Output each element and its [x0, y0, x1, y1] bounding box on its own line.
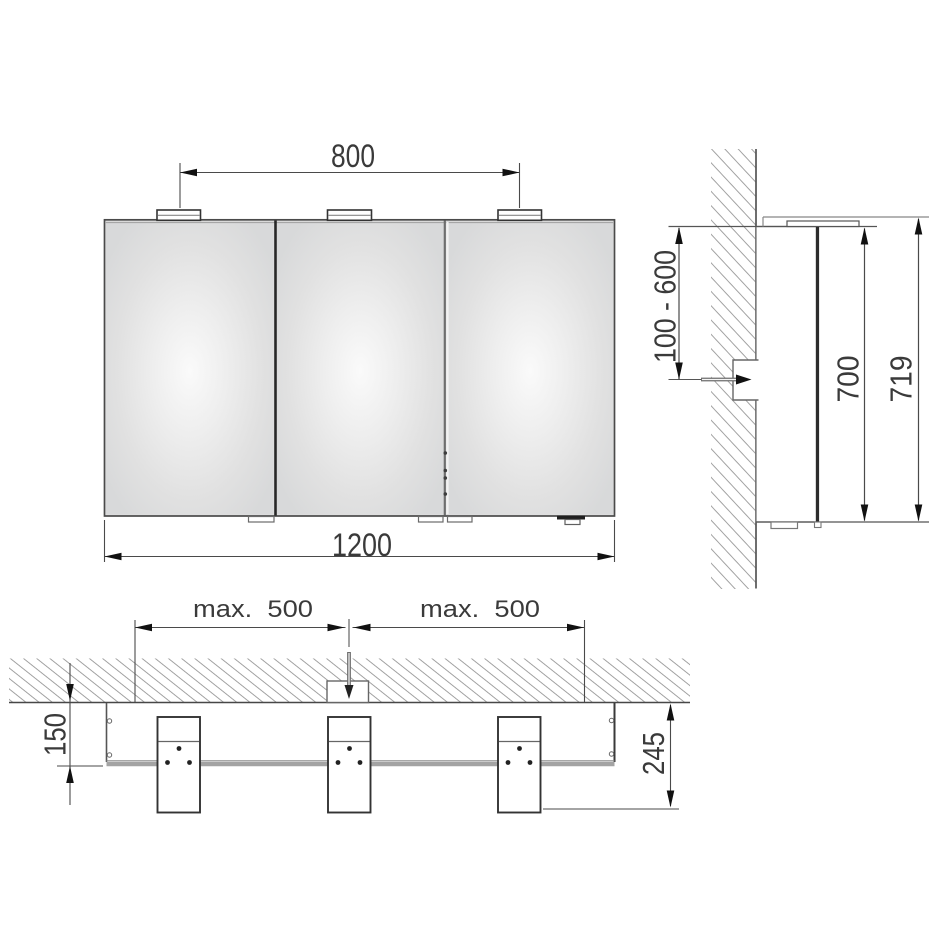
svg-text:100 - 600: 100 - 600 [648, 250, 683, 363]
svg-text:700: 700 [831, 356, 866, 403]
svg-text:max. 500: max. 500 [420, 596, 540, 623]
svg-text:719: 719 [884, 356, 919, 403]
svg-text:max. 500: max. 500 [193, 596, 313, 623]
svg-text:1200: 1200 [332, 527, 392, 563]
svg-text:245: 245 [636, 732, 671, 775]
svg-text:800: 800 [331, 138, 375, 174]
svg-text:150: 150 [38, 713, 73, 756]
